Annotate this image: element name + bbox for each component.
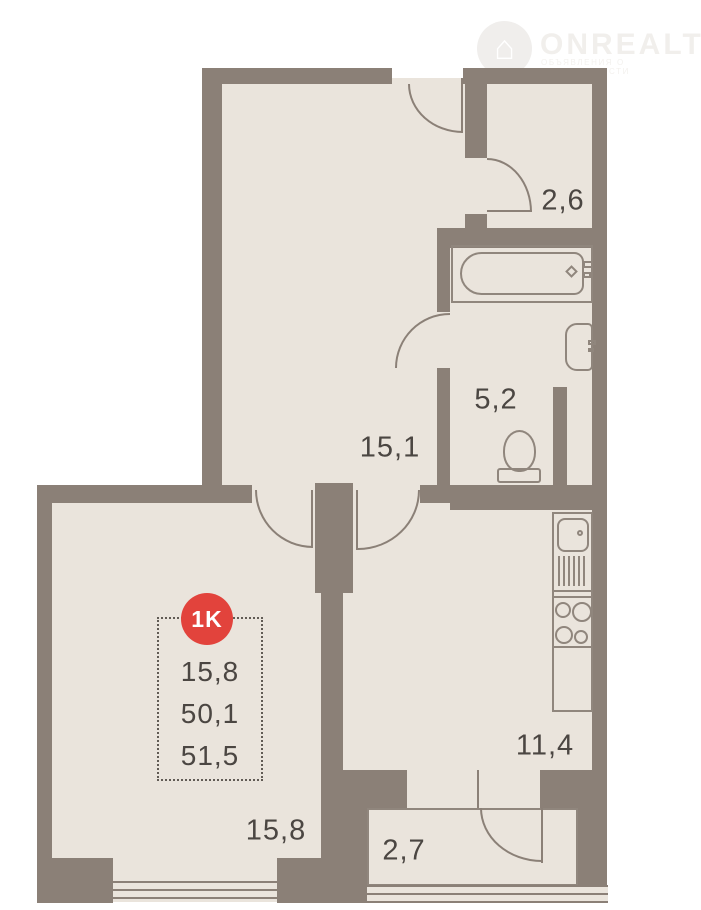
balcony-door-edge xyxy=(477,770,479,808)
window-balcony-line2 xyxy=(358,893,608,895)
wall-bath-left-lower xyxy=(437,368,450,488)
room-label-kitchen: 11,4 xyxy=(516,730,574,763)
wall-bottom-left-block xyxy=(37,858,113,903)
window-balcony-line3 xyxy=(358,901,608,903)
window-living-line1 xyxy=(113,881,277,883)
wall-hall-wardrobe-upper xyxy=(465,84,487,158)
room-label-bathroom: 5,2 xyxy=(474,384,517,417)
stove-burner3-icon xyxy=(555,626,573,644)
wall-right-kitchen xyxy=(592,503,607,770)
wall-left-lower xyxy=(37,503,52,858)
floorplan: 2,6 5,2 15,1 11,4 15,8 2,7 15,8 50,1 51,… xyxy=(0,0,701,910)
wall-balcony-left xyxy=(343,770,367,862)
wall-living-kitchen xyxy=(321,593,343,858)
drainboard-line5 xyxy=(578,556,580,586)
drainboard-line3 xyxy=(568,556,570,586)
wall-shaft xyxy=(553,387,567,490)
bathtub-basin xyxy=(460,252,584,295)
floorplan-image: ⌂ ONREALT ОБЪЯВЛЕНИЯ О НЕДВИЖИМОСТИ xyxy=(0,0,701,910)
drainboard-line2 xyxy=(563,556,565,586)
washbasin-faucet2 xyxy=(588,348,594,352)
unit-type-label: 1K xyxy=(191,606,222,633)
window-balcony-line1 xyxy=(358,885,608,887)
drainboard-line6 xyxy=(583,556,585,586)
room-label-wardrobe: 2,6 xyxy=(541,185,584,218)
unit-area-living: 15,8 xyxy=(159,651,261,693)
room-label-balcony: 2,7 xyxy=(382,835,425,868)
room-label-hallway: 15,1 xyxy=(360,432,420,465)
wall-kitchen-bottom-right xyxy=(540,770,607,808)
washbasin-faucet xyxy=(588,340,596,345)
window-bay-living xyxy=(113,858,277,902)
toilet-bowl-icon xyxy=(503,430,536,472)
wall-bath-left-upper xyxy=(437,248,450,312)
kitchen-sink-icon xyxy=(557,518,589,552)
unit-areas: 15,8 50,1 51,5 xyxy=(159,651,261,777)
kitchen-sink-faucet-dot xyxy=(577,530,583,536)
stove-burner1-icon xyxy=(555,602,571,618)
counter-divider1 xyxy=(552,590,593,592)
drainboard-line1 xyxy=(558,556,560,586)
wall-left-upper xyxy=(202,68,222,488)
wall-top-right xyxy=(463,68,607,84)
window-living-line3 xyxy=(113,897,277,899)
toilet-tank-icon xyxy=(497,468,541,483)
wall-kitchen-bottom-left xyxy=(367,770,407,808)
wall-bottom-center-block xyxy=(277,858,367,903)
drainboard-line4 xyxy=(573,556,575,586)
wall-kitchen-top-thick xyxy=(450,485,607,510)
unit-area-usable: 50,1 xyxy=(159,693,261,735)
room-label-living-room: 15,8 xyxy=(246,815,306,848)
wall-center-stub xyxy=(315,483,353,593)
wall-living-top xyxy=(37,485,252,503)
wall-top-left xyxy=(202,68,392,84)
window-living-line2 xyxy=(113,889,277,891)
stove-burner4-icon xyxy=(574,630,588,644)
unit-type-badge: 1K xyxy=(181,593,233,645)
counter-divider3 xyxy=(552,646,593,648)
stove-burner2-icon xyxy=(572,602,592,622)
counter-divider2 xyxy=(552,596,593,598)
washbasin-icon xyxy=(565,323,593,371)
wall-balcony-right xyxy=(578,808,607,886)
bathtub-faucet xyxy=(583,261,593,268)
wall-right-outer xyxy=(592,68,607,488)
unit-area-total: 51,5 xyxy=(159,735,261,777)
bathtub-faucet2 xyxy=(583,272,591,278)
